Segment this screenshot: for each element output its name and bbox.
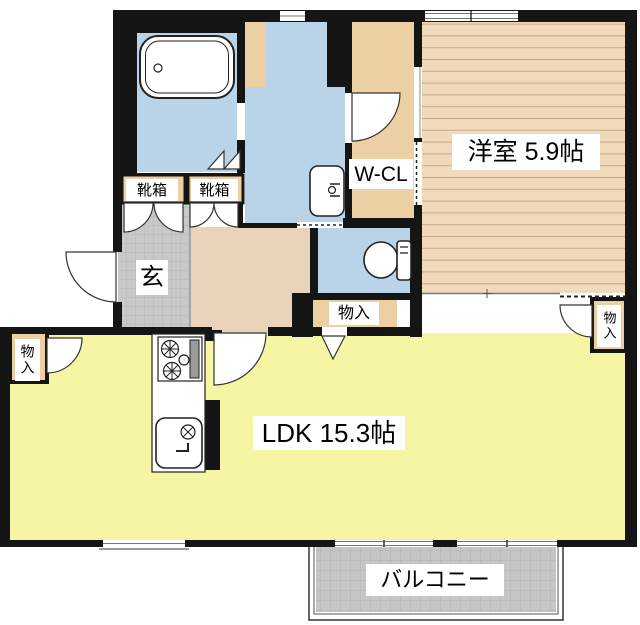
walk-in-closet-label: W-CL	[349, 159, 413, 189]
western-room-label: 洋室 5.9帖	[452, 134, 600, 170]
kitchen-sink	[156, 418, 202, 468]
window-bottom-left	[99, 540, 189, 549]
floor-plan-drawing	[0, 0, 640, 625]
balcony-label: バルコニー	[366, 564, 504, 596]
laundry-space	[245, 14, 266, 87]
storage-label: 物入	[329, 302, 379, 325]
wall	[327, 14, 345, 87]
wall	[185, 540, 335, 547]
entrance-label: 玄	[136, 260, 168, 295]
storage-right-door-swing	[560, 305, 592, 337]
bath-door-opening	[237, 103, 245, 140]
wall	[433, 540, 457, 547]
toilet	[364, 241, 411, 280]
washbasin	[310, 166, 344, 216]
kitchen-wall-stub	[204, 400, 220, 470]
window-top-western	[425, 11, 518, 21]
wall	[113, 10, 137, 173]
gas-stove	[158, 337, 202, 381]
ldk-label: LDK 15.3帖	[253, 416, 405, 450]
wall	[0, 540, 103, 547]
wall	[343, 218, 422, 228]
wall	[625, 10, 637, 547]
wall	[345, 14, 352, 93]
entry-door-swing	[66, 252, 116, 302]
wall	[237, 33, 245, 103]
wcl-door-opening	[345, 93, 352, 143]
kitchen-counter	[152, 334, 205, 472]
wcl-bedroom-opening-2	[414, 142, 422, 205]
wall	[557, 540, 637, 547]
wall	[414, 10, 422, 67]
storage-center-opening	[322, 327, 347, 336]
storage-label: 物入	[15, 339, 40, 381]
window-top-washroom	[280, 11, 305, 21]
balcony-sliding-door-left	[335, 540, 433, 547]
wcl-bedroom-opening	[414, 67, 422, 138]
balcony-sliding-door-right	[457, 540, 557, 547]
hallway-floor	[187, 227, 310, 333]
shoe-box-label: 靴箱	[126, 179, 178, 201]
storage-label: 物入	[597, 305, 621, 347]
wall	[310, 228, 318, 293]
shoe-box-label: 靴箱	[191, 179, 238, 201]
floor-plan: 洋室 5.9帖 W-CL 靴箱 靴箱 玄 物入 物入 物入 LDK 15.3帖 …	[0, 0, 640, 625]
bathtub	[140, 36, 234, 98]
wall	[243, 223, 297, 228]
